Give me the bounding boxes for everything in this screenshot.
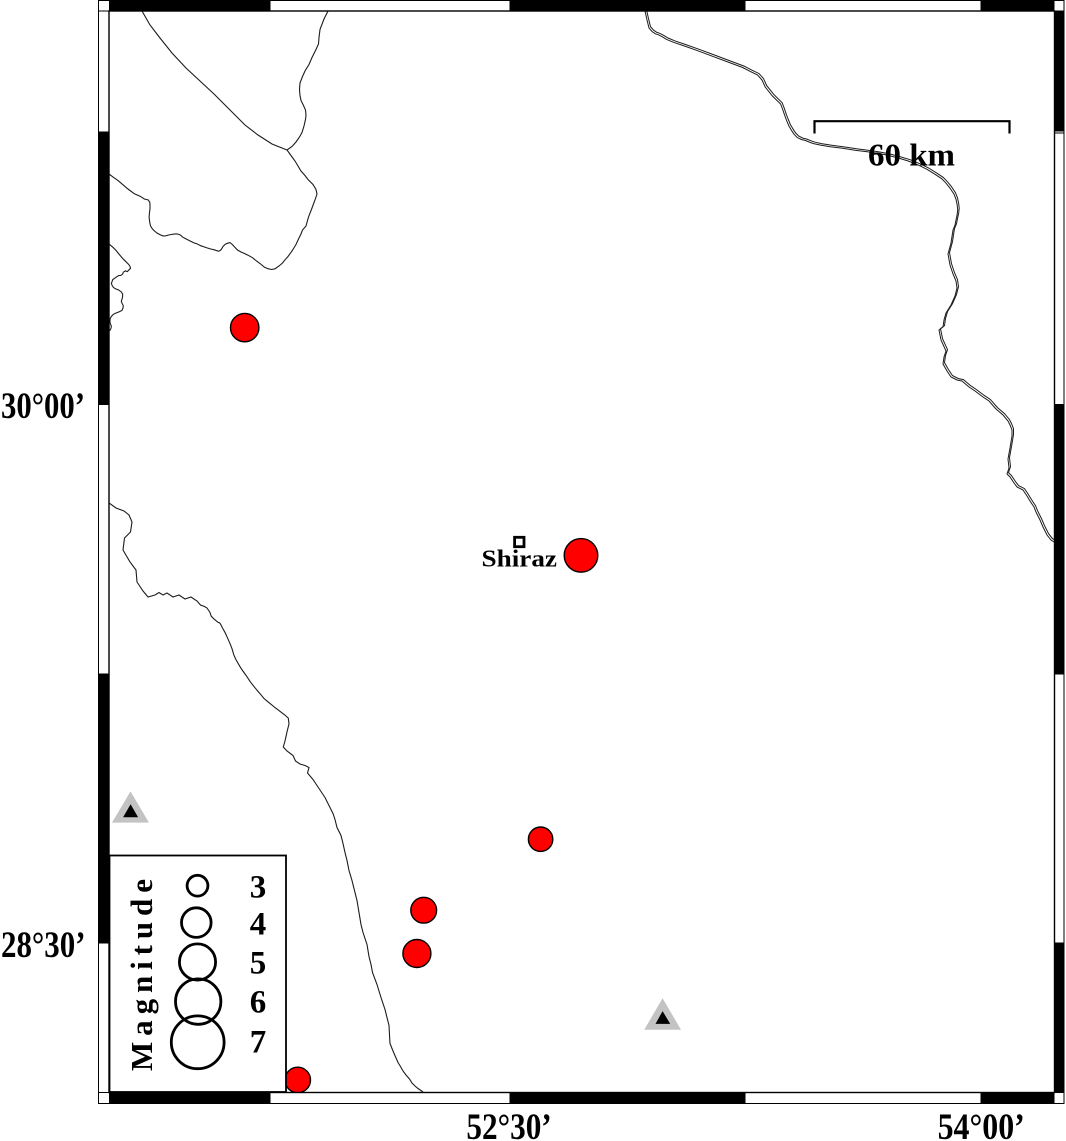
svg-text:30°00’: 30°00’ xyxy=(1,386,85,427)
svg-text:60 km: 60 km xyxy=(868,137,955,173)
svg-text:54°00’: 54°00’ xyxy=(938,1107,1025,1141)
svg-text:Shiraz: Shiraz xyxy=(482,547,558,573)
svg-text:3: 3 xyxy=(250,870,267,906)
svg-text:4: 4 xyxy=(250,907,267,943)
svg-text:5: 5 xyxy=(250,946,267,982)
svg-text:6: 6 xyxy=(250,985,267,1021)
svg-text:7: 7 xyxy=(250,1025,267,1061)
svg-text:28°30’: 28°30’ xyxy=(1,925,86,966)
svg-text:52°30’: 52°30’ xyxy=(466,1107,551,1141)
